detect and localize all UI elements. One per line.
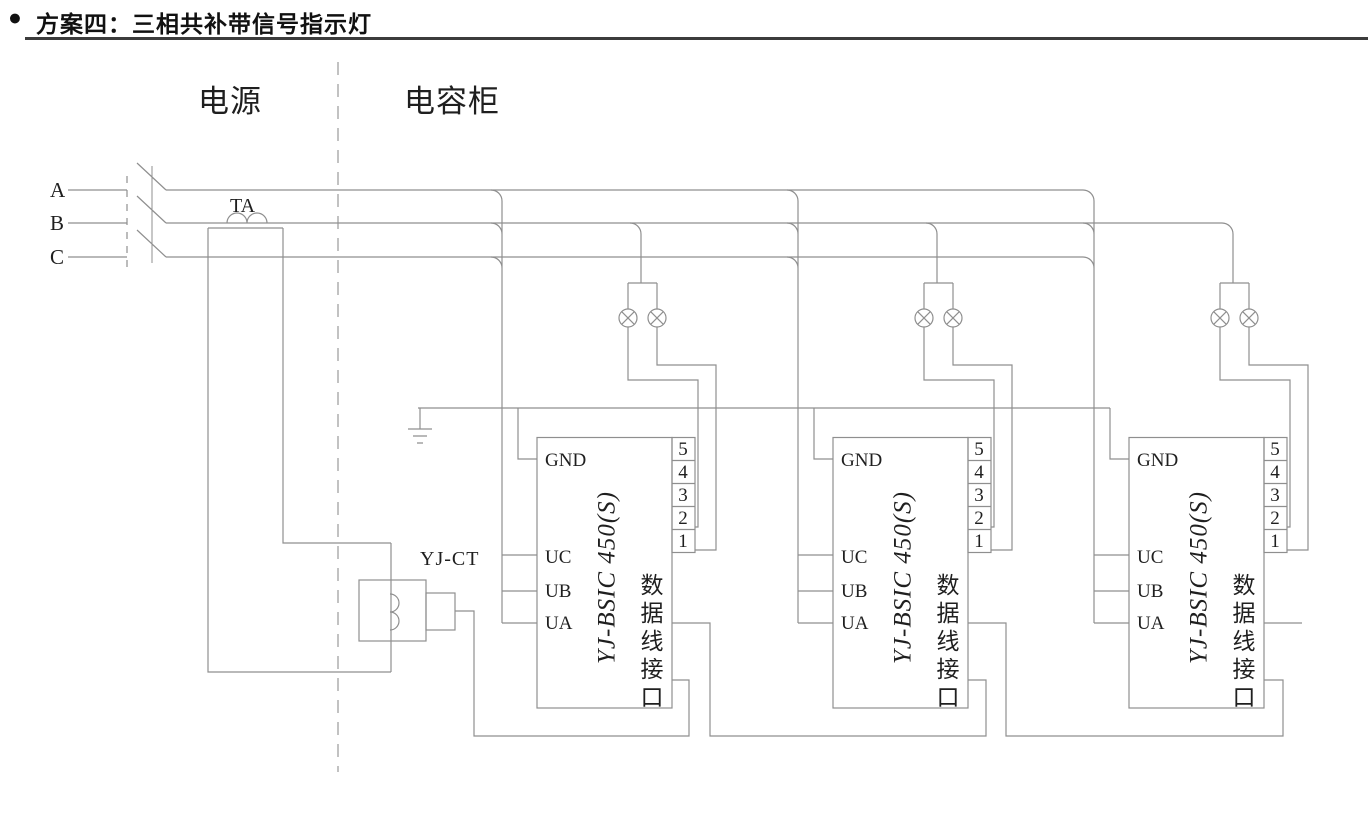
module1-ua-label: UA — [545, 614, 572, 633]
module2-pin-4: 4 — [969, 463, 989, 482]
gnd-drop-module3 — [1110, 408, 1129, 459]
yjct-box — [359, 580, 426, 641]
module1-interface-char: 口 — [639, 686, 665, 709]
module3-interface-char: 线 — [1231, 630, 1257, 653]
yjct-label: YJ-CT — [420, 549, 479, 569]
lamp-branch-module1 — [619, 223, 716, 550]
yjct-output-box — [426, 593, 455, 630]
wiring-svg — [0, 0, 1368, 831]
module2-pin-2: 2 — [969, 509, 989, 528]
module2-ua-label: UA — [841, 614, 868, 633]
gnd-drop-module1 — [518, 408, 537, 459]
module3-pin-1: 1 — [1265, 532, 1285, 551]
module2-model-label: YJ-BSIC 450(S) — [891, 438, 916, 718]
wiring-diagram-page: ● 方案四：三相共补带信号指示灯 — [0, 0, 1368, 831]
module1-interface-char: 线 — [639, 630, 665, 653]
module3-interface-char: 数 — [1231, 574, 1257, 597]
lamp-branch-module2 — [915, 223, 1012, 550]
tap-module3 — [1083, 190, 1129, 623]
module2-interface-char: 数 — [935, 574, 961, 597]
module1-pin-3: 3 — [673, 486, 693, 505]
module3-pin-5: 5 — [1265, 440, 1285, 459]
module1-interface-char: 数 — [639, 574, 665, 597]
module2-uc-label: UC — [841, 548, 867, 567]
module3-pin-2: 2 — [1265, 509, 1285, 528]
module2-pin-3: 3 — [969, 486, 989, 505]
ta-label: TA — [230, 196, 255, 216]
module3-interface-char: 据 — [1231, 602, 1257, 625]
section-label-capacitor-cabinet: 电容柜 — [404, 86, 500, 117]
module2-interface-char: 线 — [935, 630, 961, 653]
module1-uc-label: UC — [545, 548, 571, 567]
module3-pin-3: 3 — [1265, 486, 1285, 505]
module2-interface-char: 据 — [935, 602, 961, 625]
module1-ub-label: UB — [545, 582, 571, 601]
module3-ub-label: UB — [1137, 582, 1163, 601]
module1-pin-1: 1 — [673, 532, 693, 551]
module3-interface-char: 口 — [1231, 686, 1257, 709]
section-label-power: 电源 — [198, 86, 262, 117]
module1-interface-char: 接 — [639, 658, 665, 681]
module2-interface-char: 接 — [935, 658, 961, 681]
lamp-branch-module3 — [1211, 223, 1308, 550]
module1-model-label: YJ-BSIC 450(S) — [595, 438, 620, 718]
phase-label-a: A — [50, 180, 65, 201]
module1-pin-4: 4 — [673, 463, 693, 482]
module3-uc-label: UC — [1137, 548, 1163, 567]
phase-stubs — [68, 190, 127, 257]
module1-pin-2: 2 — [673, 509, 693, 528]
module2-ub-label: UB — [841, 582, 867, 601]
module3-gnd-label: GND — [1137, 451, 1178, 470]
phase-label-c: C — [50, 247, 64, 268]
module2-pin-1: 1 — [969, 532, 989, 551]
earth-symbol — [408, 408, 432, 443]
module3-ua-label: UA — [1137, 614, 1164, 633]
tap-module2 — [787, 190, 833, 623]
module3-interface-char: 接 — [1231, 658, 1257, 681]
module1-interface-char: 据 — [639, 602, 665, 625]
phase-label-b: B — [50, 213, 64, 234]
module3-model-label: YJ-BSIC 450(S) — [1187, 438, 1212, 718]
module2-gnd-label: GND — [841, 451, 882, 470]
gnd-drop-module2 — [814, 408, 833, 459]
module2-pin-5: 5 — [969, 440, 989, 459]
ta-secondary-loop — [208, 228, 391, 672]
tap-module1 — [491, 190, 537, 623]
module1-pin-5: 5 — [673, 440, 693, 459]
module2-interface-char: 口 — [935, 686, 961, 709]
module1-gnd-label: GND — [545, 451, 586, 470]
module3-pin-4: 4 — [1265, 463, 1285, 482]
